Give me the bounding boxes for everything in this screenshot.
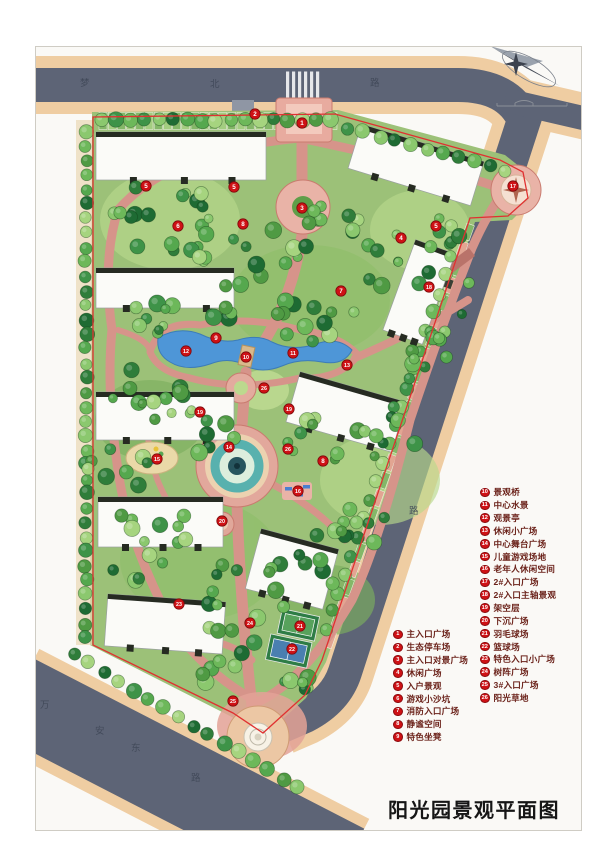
tree-highlight bbox=[83, 575, 88, 580]
tree bbox=[139, 536, 149, 546]
plan-marker: 14 bbox=[224, 442, 234, 452]
tree bbox=[267, 582, 284, 599]
tree-highlight bbox=[143, 210, 148, 215]
tree bbox=[294, 549, 305, 560]
tree-highlight bbox=[197, 221, 202, 226]
legend-number-badge: 15 bbox=[480, 552, 490, 562]
plan-marker-number: 19 bbox=[286, 407, 292, 413]
tree-highlight bbox=[265, 568, 269, 572]
tree-highlight bbox=[414, 278, 420, 284]
plan-marker: 24 bbox=[245, 618, 255, 628]
tree-highlight bbox=[82, 389, 86, 393]
tree bbox=[407, 436, 423, 452]
building-slab bbox=[96, 132, 266, 180]
tree-highlight bbox=[302, 415, 308, 421]
legend-item: 20下沉广场 bbox=[480, 614, 556, 627]
tree-highlight bbox=[116, 208, 121, 213]
plan-marker: 6 bbox=[173, 221, 183, 231]
tree bbox=[330, 447, 344, 461]
tree-highlight bbox=[304, 218, 309, 223]
tree bbox=[218, 416, 235, 433]
legend-number-badge: 23 bbox=[480, 655, 490, 665]
tree-highlight bbox=[288, 242, 294, 248]
legend-item: 11中心水景 bbox=[480, 499, 556, 512]
tree-highlight bbox=[369, 537, 375, 543]
tree-highlight bbox=[300, 321, 306, 327]
tree bbox=[137, 113, 150, 126]
tree-highlight bbox=[309, 421, 313, 425]
tree-highlight bbox=[180, 534, 186, 540]
tree bbox=[82, 463, 94, 475]
tree-highlight bbox=[310, 207, 315, 212]
tree-highlight bbox=[83, 476, 87, 480]
tree-highlight bbox=[131, 183, 136, 188]
plan-marker-number: 3 bbox=[300, 205, 304, 212]
tree-highlight bbox=[139, 401, 142, 404]
legend-number-badge: 7 bbox=[393, 707, 403, 717]
tree-highlight bbox=[233, 566, 237, 570]
tree bbox=[138, 399, 147, 408]
legend-number-badge: 21 bbox=[480, 629, 490, 639]
tree bbox=[78, 254, 91, 267]
tree bbox=[78, 428, 92, 442]
plan-marker-number: 21 bbox=[297, 624, 303, 630]
tree-highlight bbox=[83, 186, 87, 190]
legend-item: 13休闲小广场 bbox=[480, 525, 556, 538]
tree-highlight bbox=[441, 328, 445, 332]
plan-marker-number: 5 bbox=[434, 223, 438, 230]
tree-highlight bbox=[209, 588, 213, 592]
tree bbox=[295, 427, 307, 439]
tree-highlight bbox=[101, 668, 106, 673]
tree-highlight bbox=[251, 259, 257, 265]
tree-highlight bbox=[435, 334, 439, 338]
tree-highlight bbox=[127, 523, 133, 529]
tree-highlight bbox=[97, 115, 102, 120]
tree-highlight bbox=[82, 329, 88, 335]
tree-highlight bbox=[81, 519, 86, 524]
tree-highlight bbox=[83, 171, 87, 175]
legend-number-badge: 6 bbox=[393, 694, 403, 704]
tree bbox=[359, 425, 371, 437]
legend-item: 9特色坐凳 bbox=[393, 731, 468, 744]
tree bbox=[132, 319, 146, 333]
plan-marker-number: 24 bbox=[247, 621, 253, 627]
plan-marker-number: 8 bbox=[241, 221, 245, 228]
tree-highlight bbox=[114, 677, 119, 682]
legend-number-badge: 4 bbox=[393, 668, 403, 678]
tree bbox=[271, 307, 284, 320]
plan-marker-number: 23 bbox=[176, 602, 182, 608]
building-roof-shadow bbox=[96, 268, 234, 273]
tree bbox=[159, 392, 172, 405]
tree-highlight bbox=[230, 236, 234, 240]
tree bbox=[212, 569, 223, 580]
tree bbox=[152, 517, 168, 533]
tree-highlight bbox=[82, 228, 86, 232]
tree bbox=[114, 206, 127, 219]
tree bbox=[404, 373, 415, 384]
tree bbox=[112, 675, 125, 688]
tree bbox=[199, 427, 214, 442]
tree-highlight bbox=[80, 562, 85, 567]
tree bbox=[394, 257, 403, 266]
tree-highlight bbox=[459, 311, 463, 315]
building-core bbox=[123, 437, 130, 444]
tree bbox=[108, 394, 117, 403]
tree-highlight bbox=[371, 453, 375, 457]
legend-item-label: 树阵广场 bbox=[494, 666, 529, 678]
tree-highlight bbox=[178, 191, 183, 196]
tree bbox=[142, 458, 152, 468]
plan-marker-number: 2 bbox=[253, 111, 257, 118]
tree-highlight bbox=[83, 447, 88, 452]
tree-highlight bbox=[126, 365, 132, 371]
tree bbox=[81, 185, 92, 196]
tree bbox=[277, 773, 291, 787]
road-name-label: 路 bbox=[191, 772, 201, 784]
legend-number-badge: 13 bbox=[480, 526, 490, 536]
tree bbox=[228, 234, 238, 244]
tree-highlight bbox=[174, 713, 179, 718]
tree-highlight bbox=[243, 243, 247, 247]
legend-item: 16老年人休闲空间 bbox=[480, 563, 556, 576]
legend-item-label: 老年人休闲空间 bbox=[494, 563, 556, 575]
tree-highlight bbox=[205, 623, 210, 628]
tree bbox=[105, 444, 116, 455]
tree-highlight bbox=[161, 394, 166, 399]
tree bbox=[80, 299, 91, 310]
road-name-label: 北 bbox=[210, 79, 220, 90]
legend-number-badge: 20 bbox=[480, 616, 490, 626]
tree bbox=[452, 150, 465, 163]
tree-highlight bbox=[376, 133, 381, 138]
tree-highlight bbox=[470, 156, 475, 161]
tree-highlight bbox=[227, 116, 232, 121]
tree-highlight bbox=[299, 679, 303, 683]
tree-highlight bbox=[81, 127, 86, 132]
tree bbox=[440, 351, 452, 363]
tree-highlight bbox=[338, 528, 342, 532]
legend-item-label: 主入口广场 bbox=[407, 628, 451, 640]
tree-highlight bbox=[199, 203, 203, 207]
tree bbox=[119, 465, 133, 479]
site-plan-drawing: 梦北路路万安东路 1235568457912101113261919142615… bbox=[0, 0, 600, 849]
tree bbox=[124, 362, 140, 378]
plan-marker-number: 4 bbox=[399, 235, 403, 242]
legend-item: 24树阵广场 bbox=[480, 666, 556, 679]
tree bbox=[212, 600, 222, 610]
play-equipment bbox=[154, 447, 159, 452]
tree bbox=[150, 414, 161, 425]
tree-highlight bbox=[145, 550, 151, 556]
tree bbox=[146, 395, 161, 410]
plan-marker: 11 bbox=[288, 348, 298, 358]
plan-marker: 26 bbox=[259, 383, 269, 393]
tree-highlight bbox=[350, 309, 354, 313]
plan-marker: 10 bbox=[241, 352, 251, 362]
legend-number-badge: 10 bbox=[480, 488, 490, 498]
tree bbox=[297, 677, 307, 687]
legend-number-badge: 3 bbox=[393, 655, 403, 665]
tree bbox=[217, 736, 232, 751]
tree-highlight bbox=[80, 256, 85, 261]
tree bbox=[141, 208, 155, 222]
tree-highlight bbox=[220, 738, 226, 744]
tree bbox=[166, 112, 179, 125]
tree-highlight bbox=[117, 511, 122, 516]
tree bbox=[205, 309, 222, 326]
tree bbox=[326, 604, 338, 616]
tree bbox=[201, 727, 214, 740]
tree-highlight bbox=[424, 268, 429, 273]
legend-number-badge: 14 bbox=[480, 539, 490, 549]
tree bbox=[457, 309, 466, 318]
legend-item: 22篮球场 bbox=[480, 640, 556, 653]
fountain-core bbox=[255, 734, 262, 741]
tree bbox=[99, 666, 111, 678]
tree-highlight bbox=[285, 675, 291, 681]
tree-highlight bbox=[82, 316, 88, 322]
tree-highlight bbox=[107, 446, 111, 450]
tree bbox=[115, 509, 128, 522]
tree bbox=[108, 112, 124, 128]
tree bbox=[369, 429, 383, 443]
legend-item: 172#入口广场 bbox=[480, 576, 556, 589]
legend-number-badge: 18 bbox=[480, 590, 490, 600]
tree-highlight bbox=[441, 269, 446, 274]
plan-marker-number: 17 bbox=[510, 184, 516, 190]
tree bbox=[79, 602, 91, 614]
tree bbox=[79, 125, 93, 139]
tree bbox=[350, 516, 363, 529]
tree-highlight bbox=[402, 384, 407, 389]
tree-highlight bbox=[292, 782, 297, 787]
tree-highlight bbox=[280, 296, 286, 302]
tree-highlight bbox=[82, 301, 86, 305]
tree-highlight bbox=[202, 429, 208, 435]
tree bbox=[388, 134, 401, 147]
tree-highlight bbox=[406, 375, 410, 379]
tree-highlight bbox=[344, 211, 349, 216]
legend-number-badge: 2 bbox=[393, 643, 403, 653]
plan-marker: 18 bbox=[424, 282, 434, 292]
tree bbox=[290, 780, 304, 794]
tree-highlight bbox=[83, 504, 88, 509]
tree-highlight bbox=[262, 764, 268, 770]
tree-highlight bbox=[179, 511, 184, 516]
tree bbox=[81, 169, 93, 181]
tree-highlight bbox=[282, 115, 288, 121]
tree bbox=[207, 586, 219, 598]
legend-item: 26阳光草地 bbox=[480, 692, 556, 705]
tree-highlight bbox=[230, 661, 235, 666]
tree-highlight bbox=[155, 520, 161, 526]
building-core bbox=[162, 647, 169, 654]
plan-marker-number: 19 bbox=[197, 410, 203, 416]
tree bbox=[484, 159, 497, 172]
tree-highlight bbox=[352, 518, 357, 523]
tree-highlight bbox=[268, 224, 274, 230]
tree-highlight bbox=[101, 471, 107, 477]
tree bbox=[181, 112, 195, 126]
plan-marker-number: 5 bbox=[144, 183, 148, 190]
tree bbox=[176, 190, 188, 202]
legend-number-badge: 25 bbox=[480, 680, 490, 690]
tree bbox=[79, 517, 91, 529]
legend-item-label: 中心舞台广场 bbox=[494, 538, 547, 550]
legend-item-label: 景观桥 bbox=[494, 486, 520, 498]
plan-marker-number: 18 bbox=[426, 285, 432, 291]
tree-highlight bbox=[249, 637, 255, 643]
tree-highlight bbox=[144, 459, 148, 463]
tree-highlight bbox=[230, 434, 235, 439]
tree bbox=[80, 402, 93, 415]
tree-highlight bbox=[393, 231, 397, 235]
plan-marker-number: 14 bbox=[226, 445, 232, 451]
tree-highlight bbox=[390, 136, 395, 141]
tree-highlight bbox=[80, 589, 85, 594]
plan-marker: 21 bbox=[295, 621, 305, 631]
plan-marker-number: 26 bbox=[285, 447, 291, 453]
tree bbox=[79, 415, 91, 427]
tree bbox=[278, 601, 290, 613]
tree-highlight bbox=[135, 321, 140, 326]
tree-highlight bbox=[81, 633, 86, 638]
tree bbox=[81, 359, 92, 370]
tree bbox=[343, 502, 357, 516]
legend-number-badge: 24 bbox=[480, 667, 490, 677]
tree bbox=[310, 528, 324, 542]
plan-marker: 25 bbox=[228, 696, 238, 706]
plan-marker-number: 12 bbox=[183, 349, 189, 355]
tree-highlight bbox=[83, 198, 88, 203]
tree-highlight bbox=[442, 353, 447, 358]
tree bbox=[342, 209, 356, 223]
legend-number-badge: 1 bbox=[393, 630, 403, 640]
tree-highlight bbox=[149, 397, 155, 403]
tree-highlight bbox=[328, 308, 332, 312]
tree bbox=[379, 512, 390, 523]
plan-marker: 1 bbox=[297, 118, 307, 128]
tree-highlight bbox=[446, 252, 450, 256]
tree bbox=[366, 534, 382, 550]
legend-item-label: 3#入口广场 bbox=[494, 679, 539, 691]
tree bbox=[80, 370, 94, 384]
legend-number-badge: 9 bbox=[393, 732, 403, 742]
legend-item: 19架空层 bbox=[480, 602, 556, 615]
plan-marker: 22 bbox=[287, 644, 297, 654]
legend-item: 4休闲广场 bbox=[393, 667, 468, 680]
tree bbox=[81, 655, 95, 669]
road-name-label: 梦 bbox=[80, 78, 90, 89]
tree bbox=[153, 113, 166, 126]
tree bbox=[336, 526, 347, 537]
legend-item-label: 羽毛球场 bbox=[494, 628, 529, 640]
legend-item-label: 儿童游戏场地 bbox=[494, 551, 547, 563]
tree-highlight bbox=[81, 621, 86, 626]
tree bbox=[404, 138, 418, 152]
plan-marker-number: 13 bbox=[344, 363, 350, 369]
tree bbox=[126, 683, 142, 699]
tree-highlight bbox=[203, 730, 208, 735]
legend-number-badge: 26 bbox=[480, 693, 490, 703]
tree bbox=[124, 520, 140, 536]
tree bbox=[341, 123, 354, 136]
tree bbox=[80, 286, 93, 299]
plan-marker: 19 bbox=[195, 407, 205, 417]
tree bbox=[265, 222, 282, 239]
plan-marker-number: 10 bbox=[243, 355, 249, 361]
legend-item: 8静谧空间 bbox=[393, 718, 468, 731]
tree bbox=[299, 239, 314, 254]
tree-highlight bbox=[162, 306, 166, 310]
building-core bbox=[195, 544, 202, 551]
tree-highlight bbox=[378, 459, 383, 464]
legend-item: 14中心舞台广场 bbox=[480, 537, 556, 550]
tree bbox=[219, 301, 232, 314]
road-name-label: 路 bbox=[370, 77, 380, 89]
legend-item-label: 阳光草地 bbox=[494, 692, 529, 704]
tree-highlight bbox=[270, 585, 276, 591]
tree bbox=[388, 401, 399, 412]
tree bbox=[173, 521, 184, 532]
tree-highlight bbox=[220, 418, 226, 424]
legend-number-badge: 11 bbox=[480, 501, 490, 511]
tree-highlight bbox=[204, 599, 210, 605]
tree bbox=[425, 241, 437, 253]
tree bbox=[197, 201, 208, 212]
tree-highlight bbox=[371, 477, 376, 482]
tree bbox=[355, 124, 370, 139]
tree-highlight bbox=[309, 337, 313, 341]
tree-highlight bbox=[133, 480, 139, 486]
tree bbox=[349, 307, 359, 317]
tree-highlight bbox=[156, 327, 159, 330]
plan-marker-number: 6 bbox=[176, 223, 180, 230]
tree-highlight bbox=[213, 626, 219, 632]
tree-highlight bbox=[81, 417, 86, 422]
legend-item-label: 休闲广场 bbox=[407, 667, 442, 679]
tree-highlight bbox=[186, 245, 192, 251]
tree bbox=[78, 586, 92, 600]
legend-item-label: 生态停车场 bbox=[407, 641, 451, 653]
tree-highlight bbox=[346, 552, 351, 557]
tree-highlight bbox=[408, 347, 413, 352]
tree bbox=[307, 419, 318, 430]
tree bbox=[156, 700, 171, 715]
building bbox=[96, 132, 266, 184]
tree-highlight bbox=[252, 612, 258, 618]
tree-highlight bbox=[175, 387, 181, 393]
tree-highlight bbox=[82, 244, 87, 249]
legend-number-badge: 19 bbox=[480, 603, 490, 613]
tree bbox=[213, 655, 226, 668]
tree-highlight bbox=[81, 604, 86, 609]
tree-highlight bbox=[501, 167, 506, 172]
plan-marker: 16 bbox=[293, 486, 303, 496]
tree bbox=[80, 226, 92, 238]
plan-marker: 5 bbox=[229, 182, 239, 192]
tree-highlight bbox=[371, 431, 376, 436]
tree-highlight bbox=[319, 318, 325, 324]
tree-highlight bbox=[83, 657, 88, 662]
plan-marker-number: 20 bbox=[219, 519, 225, 525]
legend-item-label: 特色入口小广场 bbox=[494, 653, 556, 665]
tree bbox=[78, 630, 91, 643]
plan-marker: 2 bbox=[250, 109, 260, 119]
tree bbox=[80, 532, 92, 544]
